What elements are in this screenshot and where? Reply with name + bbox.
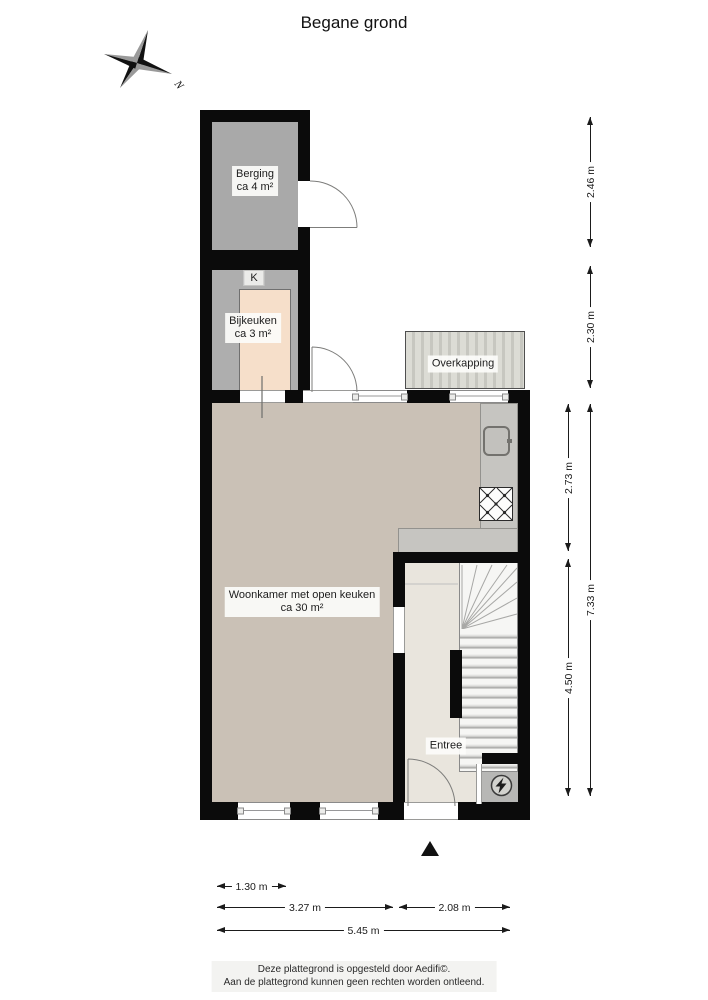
closet-k-tag: K — [243, 270, 264, 286]
footer-line1: Deze plattegrond is opgesteld door Aedif… — [224, 964, 485, 977]
dim-line-2-30: 2.30 m — [590, 266, 591, 388]
window-bottom-center — [320, 802, 378, 820]
berging-door-icon — [310, 181, 357, 228]
wall-outer-left — [200, 110, 212, 820]
footer-line2: Aan de plattegrond kunnen geen rechten w… — [224, 977, 485, 990]
entrance-arrow-icon — [421, 841, 439, 856]
window-top-left — [353, 390, 407, 403]
backdoor-opening — [303, 390, 353, 403]
stair-treads — [460, 629, 517, 771]
dim-line-2-73: 2.73 m — [568, 404, 569, 551]
compass-north-label: N — [171, 78, 186, 92]
berging-door-opening — [298, 181, 310, 227]
bijkeuken-area: ca 3 m² — [229, 328, 277, 341]
dim-line-5-45: 5.45 m — [217, 930, 510, 931]
wall-entree-left — [393, 552, 405, 802]
dim-line-7-33: 7.33 m — [590, 404, 591, 796]
dim-label: 4.50 m — [563, 657, 575, 697]
frontdoor-opening — [404, 802, 458, 820]
wall-outer-right — [518, 390, 530, 820]
wall-meterkast-top — [482, 753, 518, 764]
berging-area: ca 4 m² — [236, 181, 274, 194]
floorplan-canvas: Begane grond N — [0, 0, 708, 1000]
meterkast-door — [476, 764, 482, 804]
stove-icon — [479, 487, 513, 521]
overkapping-label: Overkapping — [428, 356, 498, 373]
dim-line-3-27: 3.27 m — [217, 907, 393, 908]
dim-label: 2.30 m — [585, 307, 597, 347]
woonkamer-name: Woonkamer met open keuken — [229, 589, 376, 602]
woonkamer-label: Woonkamer met open keuken ca 30 m² — [225, 587, 380, 617]
wall-berging-bottom — [200, 250, 310, 270]
dim-line-1-30: 1.30 m — [217, 886, 286, 887]
dim-label: 2.46 m — [585, 162, 597, 202]
berging-name: Berging — [236, 168, 274, 181]
dim-label: 7.33 m — [585, 580, 597, 620]
bijkeuken-name: Bijkeuken — [229, 315, 277, 328]
footer-disclaimer: Deze plattegrond is opgesteld door Aedif… — [212, 961, 497, 992]
dim-line-2-08: 2.08 m — [399, 907, 510, 908]
entree-label: Entree — [426, 738, 466, 755]
dim-line-2-46: 2.46 m — [590, 117, 591, 247]
dim-line-4-50: 4.50 m — [568, 559, 569, 796]
woonkamer-area: ca 30 m² — [229, 602, 376, 615]
kitchen-worktop — [398, 528, 518, 553]
electric-meter-icon — [489, 773, 514, 798]
staircase — [459, 562, 518, 772]
back-door-icon — [312, 347, 357, 392]
window-top-right — [450, 390, 508, 403]
dim-label: 5.45 m — [343, 925, 383, 937]
page-title: Begane grond — [301, 13, 408, 33]
wall-stair-stub — [450, 650, 462, 718]
dim-label: 1.30 m — [231, 881, 271, 893]
dim-label: 3.27 m — [285, 902, 325, 914]
berging-label: Berging ca 4 m² — [232, 166, 278, 196]
dim-label: 2.08 m — [434, 902, 474, 914]
bijkeuken-label: Bijkeuken ca 3 m² — [225, 313, 281, 343]
wall-entree-top — [393, 552, 518, 563]
dim-label: 2.73 m — [563, 457, 575, 497]
stair-winders — [460, 563, 518, 629]
compass-icon: N — [95, 25, 190, 110]
bijkeuken-door-opening — [240, 390, 285, 403]
entree-passage-opening — [393, 607, 405, 653]
wall-berging-top — [200, 110, 310, 122]
sink-icon — [483, 426, 510, 456]
window-bottom-left — [238, 802, 290, 820]
